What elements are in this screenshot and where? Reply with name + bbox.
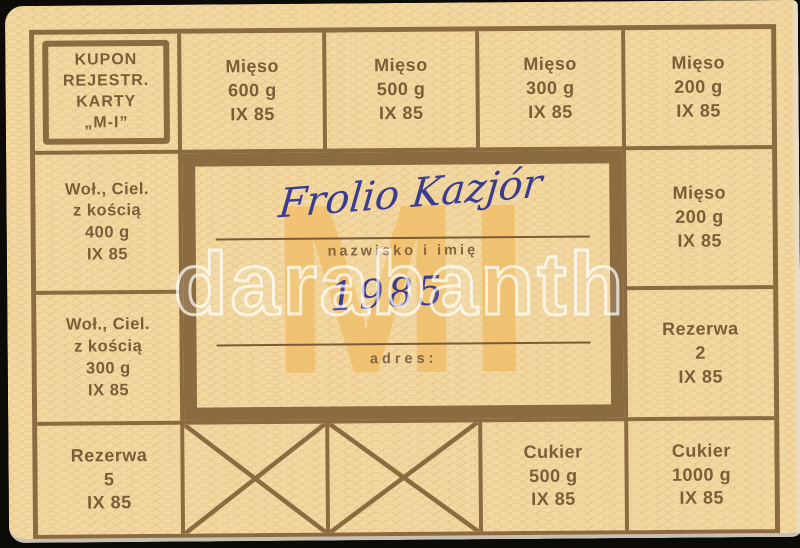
- coupon-label: Mięso 300 g IX 85: [523, 53, 577, 125]
- coupon-label: Mięso 200 g IX 85: [671, 52, 725, 124]
- printed-frame: KUPON REJESTR. KARTY „M-I” Mięso 600 g I…: [29, 24, 780, 540]
- coupon-label: Mięso 600 g IX 85: [225, 55, 279, 127]
- coupon-reserve-5: Rezerwa 5 IX 85: [37, 425, 181, 535]
- address-label: adres:: [197, 349, 611, 368]
- coupon-meat-300g: Mięso 300 g IX 85: [479, 30, 622, 147]
- ration-card-photo: KUPON REJESTR. KARTY „M-I” Mięso 600 g I…: [0, 0, 800, 548]
- coupon-label: Cukier 500 g IX 85: [524, 441, 584, 513]
- name-label: nazwisko i imię: [196, 241, 610, 260]
- coupon-beef-veal-300g: Woł., Ciel. z kością 300 g IX 85: [36, 294, 180, 422]
- coupon-reserve-2: Rezerwa 2 IX 85: [627, 290, 774, 418]
- coupon-label: Woł., Ciel. z kością 300 g IX 85: [66, 314, 151, 402]
- coupon-crossed-out-2: [330, 423, 479, 533]
- coupon-grid: KUPON REJESTR. KARTY „M-I” Mięso 600 g I…: [34, 29, 775, 535]
- coupon-label: Cukier 1000 g IX 85: [672, 439, 732, 511]
- coupon-label: Rezerwa 5 IX 85: [71, 444, 148, 516]
- coupon-beef-veal-400g: Woł., Ciel. z kością 400 g IX 85: [35, 154, 179, 292]
- coupon-sugar-500g: Cukier 500 g IX 85: [482, 421, 625, 531]
- coupon-label: Woł., Ciel. z kością 400 g IX 85: [65, 179, 150, 267]
- coupon-meat-200g-right: Mięso 200 g IX 85: [626, 149, 773, 287]
- coupon-label: Mięso 200 g IX 85: [672, 182, 726, 254]
- coupon-meat-600g: Mięso 600 g IX 85: [181, 33, 323, 150]
- holder-details-box: MI Frolio Kazjór nazwisko i imię 1985 ad…: [182, 150, 624, 421]
- x-cross-icon: [330, 423, 479, 533]
- card-title: KUPON REJESTR. KARTY „M-I”: [63, 50, 150, 134]
- card-title-cell: KUPON REJESTR. KARTY „M-I”: [34, 34, 178, 151]
- coupon-meat-200g-top: Mięso 200 g IX 85: [625, 29, 772, 146]
- coupon-sugar-1000g: Cukier 1000 g IX 85: [628, 420, 775, 530]
- ration-card: KUPON REJESTR. KARTY „M-I” Mięso 600 g I…: [5, 0, 800, 543]
- coupon-meat-500g: Mięso 500 g IX 85: [327, 31, 476, 148]
- x-cross-icon: [184, 424, 326, 534]
- coupon-label: Rezerwa 2 IX 85: [662, 317, 739, 389]
- coupon-crossed-out-1: [184, 424, 326, 534]
- card-title-box: KUPON REJESTR. KARTY „M-I”: [42, 40, 170, 145]
- coupon-label: Mięso 500 g IX 85: [374, 54, 428, 126]
